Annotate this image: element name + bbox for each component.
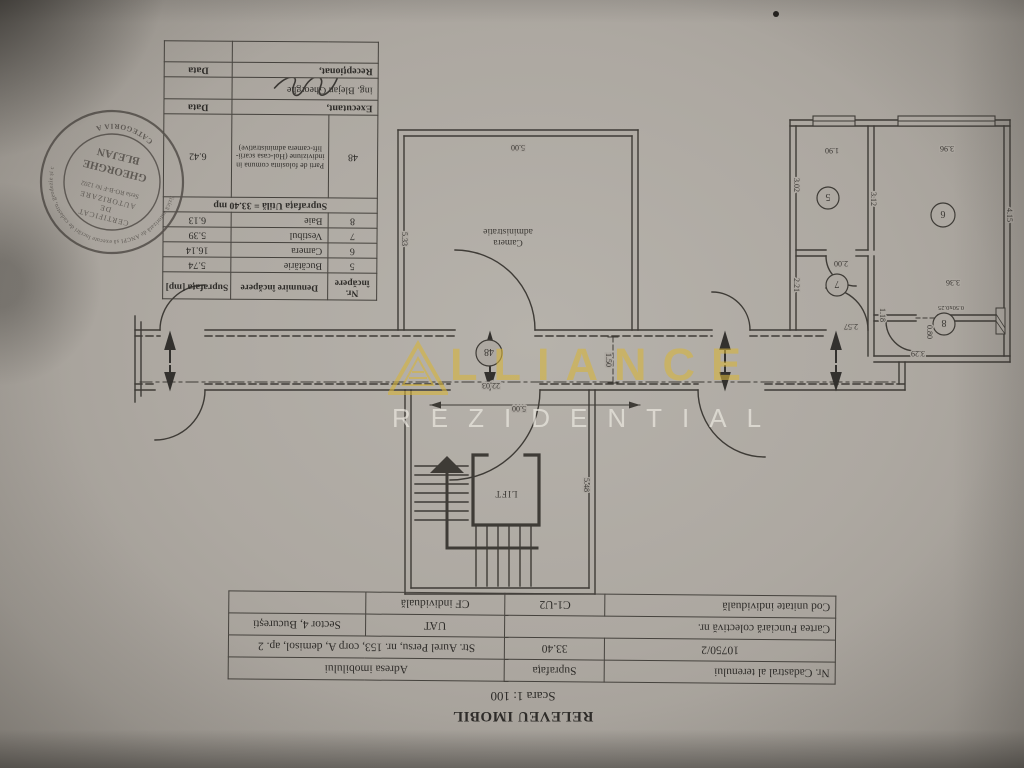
room-number-6: 6 — [941, 208, 946, 219]
executant-name: ing. Blejan Gheorghe — [232, 77, 378, 100]
receptionat-name-cell — [233, 41, 379, 63]
land-book-label: Cartea Funciară colectivă nr. — [505, 615, 836, 640]
room-nr: 8 — [328, 213, 377, 228]
dim-label: 1.50 — [604, 353, 613, 367]
table-row: 6 Camera 16.14 — [163, 242, 377, 258]
executant-data-label: Data — [164, 99, 233, 114]
cadastral-nr-label: Nr. Cadastral al terenului — [604, 660, 835, 684]
room-number-8: 8 — [942, 317, 947, 328]
page-title: RELEVEU IMOBIL — [413, 707, 633, 724]
room-admin-label-l2: administratie — [483, 226, 533, 236]
executant-label: Executant, — [232, 99, 378, 115]
room-area: 5.74 — [163, 257, 232, 272]
document-title-block: RELEVEU IMOBIL Scara 1: 100 — [413, 678, 633, 724]
room-name: Bucătărie — [231, 257, 327, 273]
dim-label: 0.80 — [925, 325, 934, 339]
dim-label: 5.00 — [512, 404, 526, 413]
col-header-nr: Nr. încăpere — [327, 273, 376, 300]
unit-code-label: Cod unitate individuală — [605, 594, 836, 618]
room-nr: 7 — [328, 228, 377, 243]
dim-label: 5.00 — [511, 143, 525, 152]
cadastral-nr-value: 10750/2 — [605, 638, 836, 662]
dim-label: 1.18 — [878, 308, 887, 322]
lift-label: LIFT — [495, 489, 518, 499]
total-usable-area: Suprafața Utilă = 33.40 mp — [163, 197, 377, 213]
dim-label: 3.96 — [940, 144, 954, 153]
room-admin-label-l1: Camera — [492, 237, 522, 247]
table-row: 5 Bucătărie 5.74 — [163, 257, 377, 273]
dim-label: 3.29 — [911, 349, 925, 358]
dim-label: 5.48 — [582, 478, 591, 492]
cf-individual-value — [229, 591, 366, 614]
col-header-denumire: Denumire încăpere — [231, 272, 327, 300]
room-number-7: 7 — [835, 278, 840, 289]
dim-label: 5.33 — [400, 232, 409, 246]
room-name: Vestibul — [231, 227, 327, 243]
corridor-number: 48 — [484, 346, 494, 357]
dim-label: 3.36 — [946, 278, 960, 287]
scan-artifact-dot — [773, 11, 779, 17]
uat-value: Sector 4, București — [229, 613, 366, 636]
common-parts-nr: 48 — [328, 115, 378, 198]
unit-code-value: C1-U2 — [505, 593, 605, 616]
col-header-suprafata: Suprafața [mp] — [163, 272, 232, 299]
window-size-label: 0.50x0.25 — [938, 304, 964, 311]
dim-label: 22,03 — [482, 381, 500, 390]
receptionat-label: Recepționat, — [233, 62, 379, 78]
area-value: 33.40 — [505, 637, 605, 660]
dim-label: 2.21 — [792, 278, 801, 292]
room-name: Camera — [231, 242, 327, 258]
uat-label: UAT — [365, 614, 505, 637]
cadastral-info-table: Nr. Cadastral al terenului Suprafața Adr… — [228, 590, 837, 684]
address-value: Str. Aurel Persu, nr. 153, corp A, demis… — [228, 635, 504, 659]
receptionat-signature-cell — [164, 41, 233, 62]
table-row: 8 Baie 6.13 — [163, 212, 377, 228]
executant-signature-cell — [164, 77, 233, 99]
dim-label: 1.90 — [825, 146, 839, 155]
dim-label: 4.15 — [1005, 208, 1014, 222]
room-number-5: 5 — [826, 191, 831, 202]
cf-individual-label: CF individuală — [365, 592, 505, 615]
scanned-document-photo: 5 6 7 8 48 administratie Camera LIFT 5.0… — [0, 0, 1024, 768]
room-name: Baie — [232, 212, 328, 228]
dim-label: 3.12 — [869, 192, 878, 206]
receptionat-data-label: Data — [164, 62, 233, 77]
dim-label: 3.02 — [792, 178, 801, 192]
table-row: 7 Vestibul 5.39 — [163, 227, 377, 243]
room-nr: 5 — [328, 258, 377, 273]
dim-label: 2.57 — [844, 322, 858, 331]
room-area-table: Nr. încăpere Denumire încăpere Suprafața… — [162, 41, 379, 300]
scale-label: Scara 1: 100 — [413, 688, 633, 704]
common-parts-name: Parti de folosinta comuna in indiviziune… — [232, 114, 329, 198]
room-nr: 6 — [328, 243, 377, 258]
dim-label: 2.00 — [834, 259, 848, 268]
